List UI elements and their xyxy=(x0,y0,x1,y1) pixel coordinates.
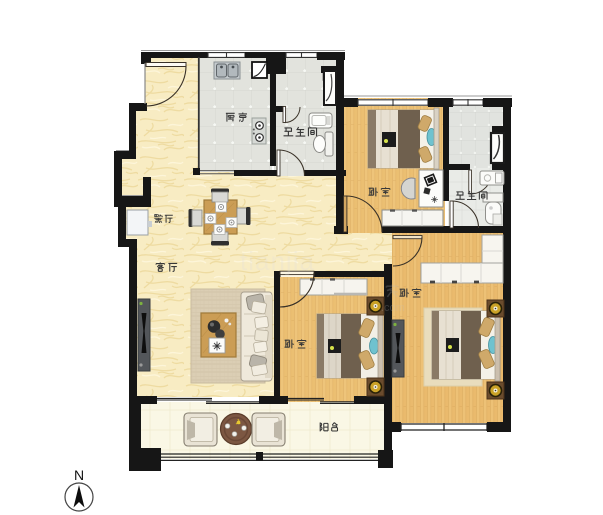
svg-text:N: N xyxy=(74,467,84,483)
svg-text:.com: .com xyxy=(381,302,405,314)
svg-text:tianjia: tianjia xyxy=(240,246,315,276)
